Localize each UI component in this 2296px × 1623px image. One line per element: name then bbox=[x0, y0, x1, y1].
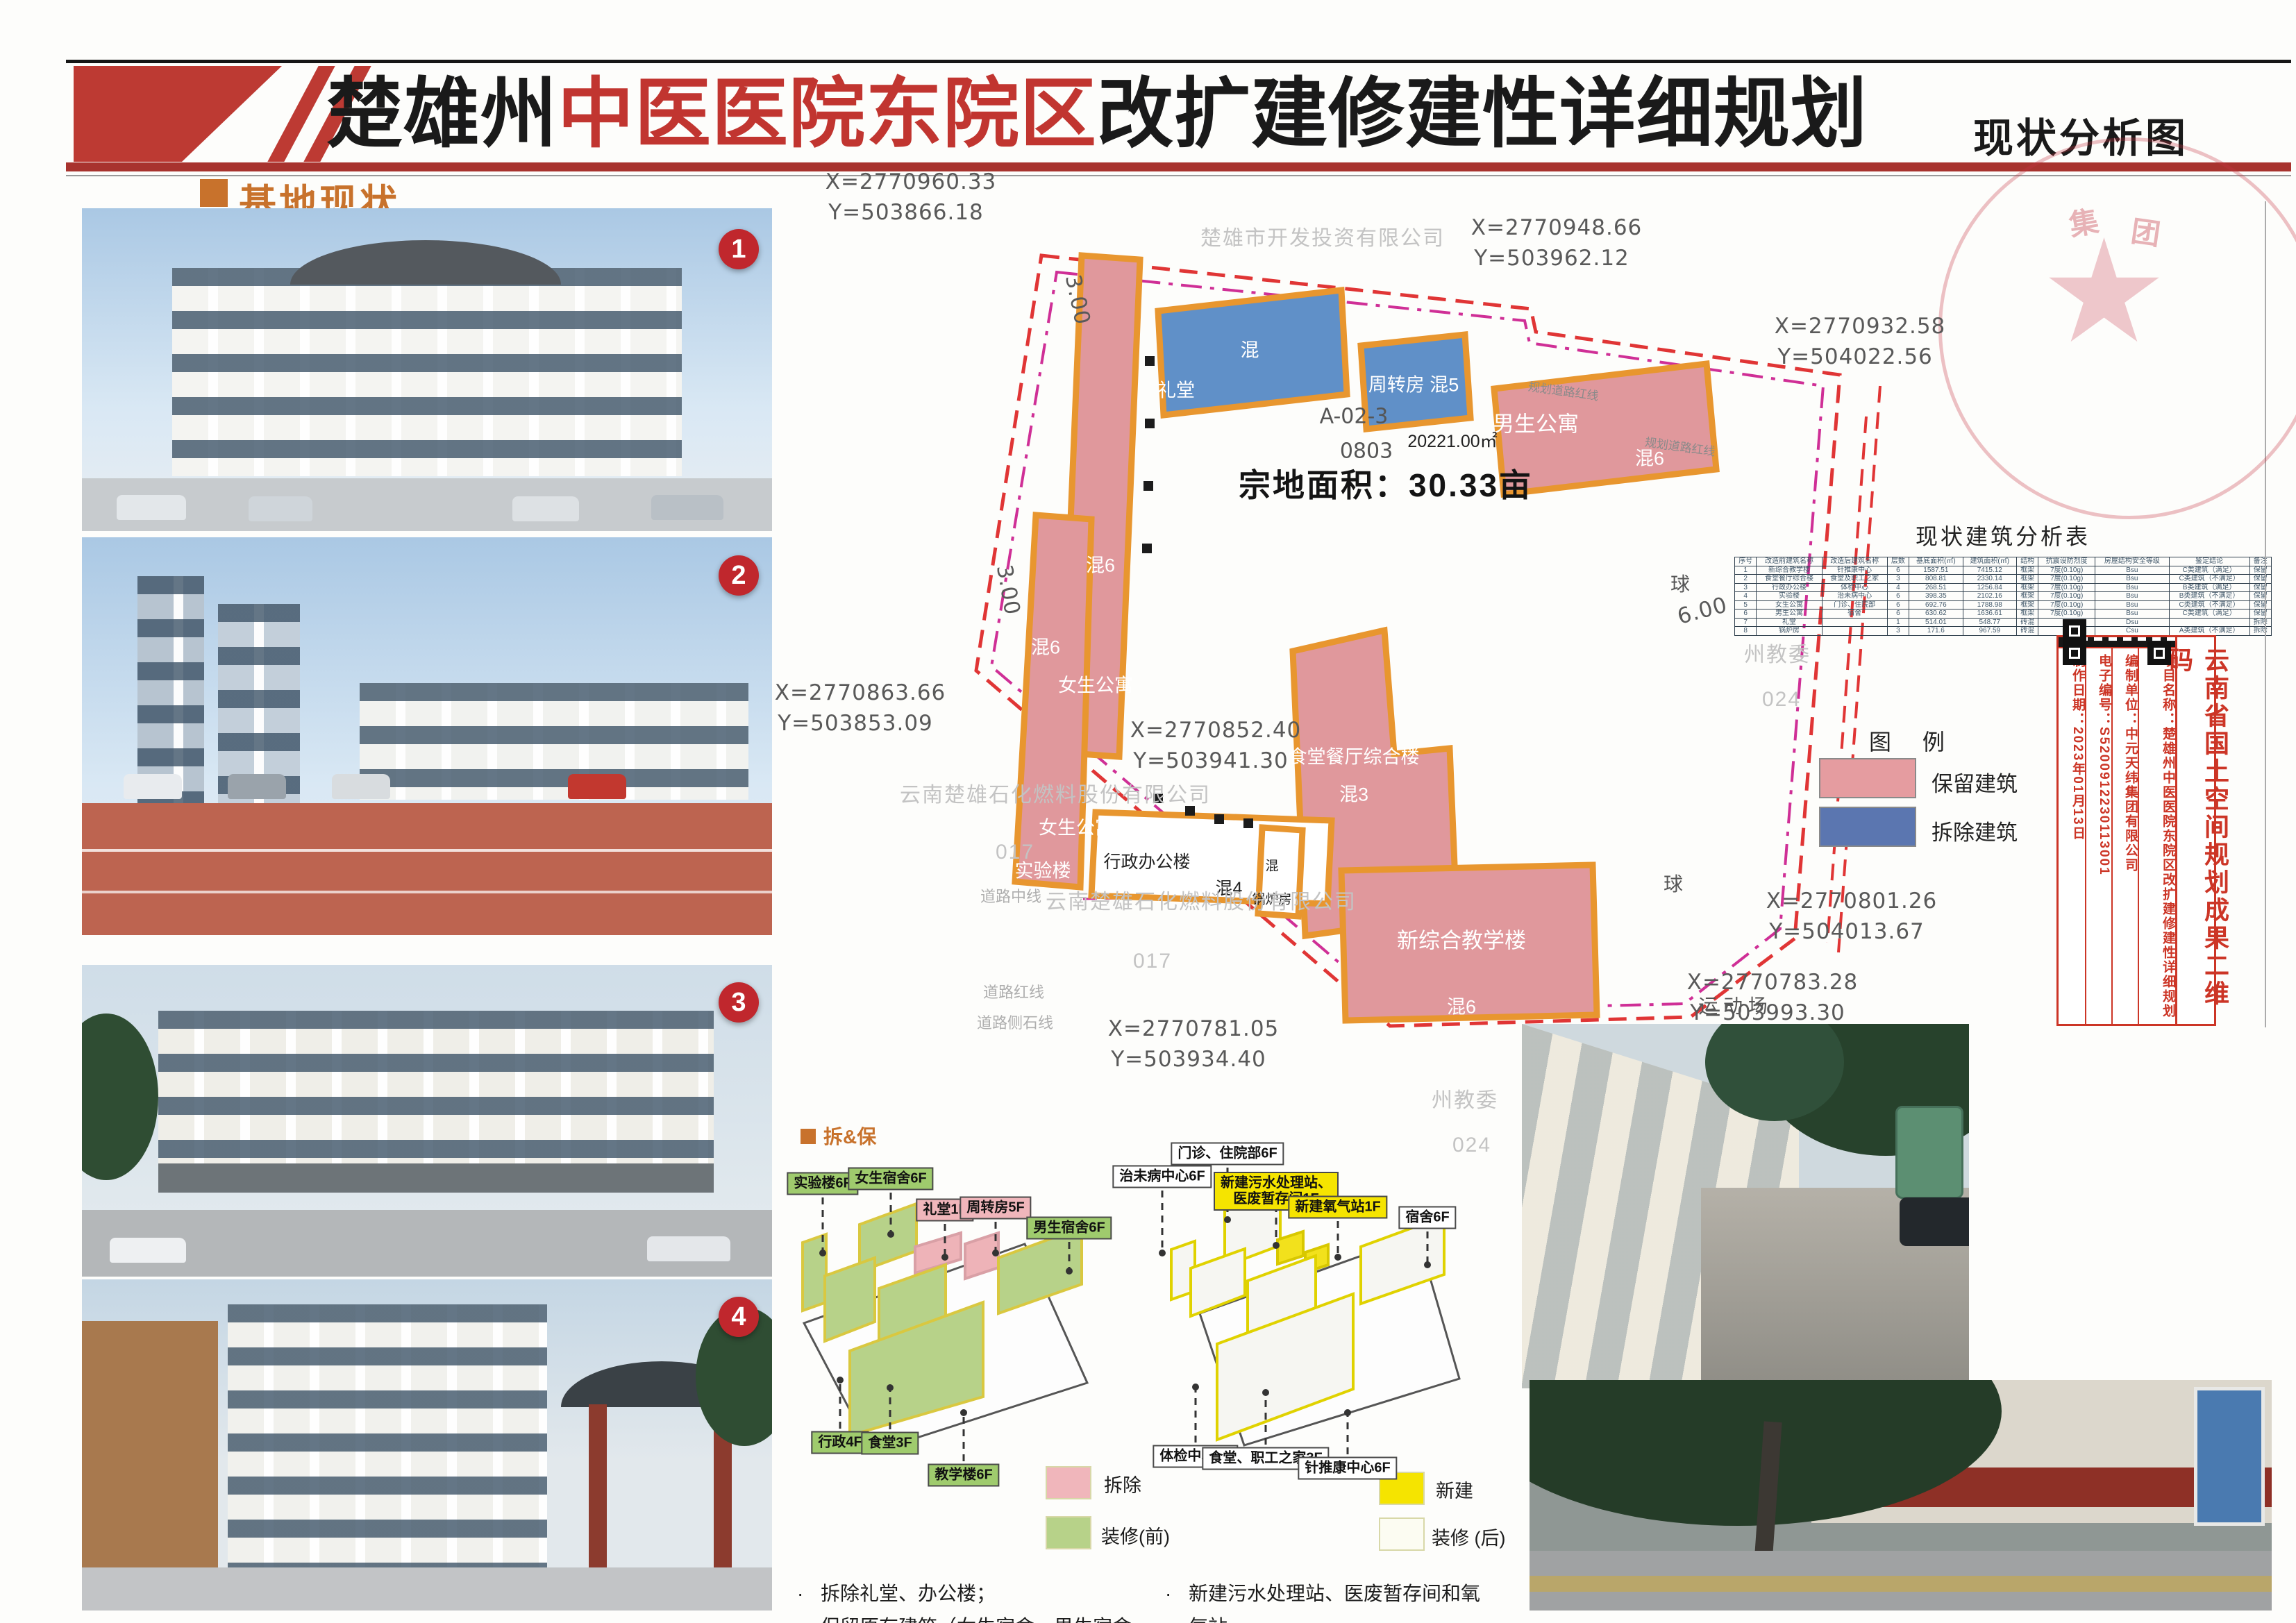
map-label: 新综合教学楼 bbox=[1397, 923, 1526, 955]
table-cell bbox=[2169, 618, 2249, 627]
table-cell: B类建筑（满足） bbox=[2169, 583, 2249, 592]
photo-badge-4: 4 bbox=[719, 1297, 759, 1337]
photo4-ground bbox=[82, 1567, 772, 1611]
table-cell: C类建筑（满足） bbox=[2169, 609, 2249, 619]
photo3-storefront bbox=[158, 1163, 714, 1193]
map-label: 017 bbox=[1133, 950, 1172, 973]
map-label: X=2770781.05 bbox=[1108, 1016, 1280, 1041]
leader-dot bbox=[1334, 1254, 1341, 1261]
table-cell: 6 bbox=[1887, 592, 1909, 601]
plan-sheet: 楚雄州中医医院东院区改扩建修建性详细规划 现状分析图 基地现状 拆&保 bbox=[0, 0, 2296, 1623]
leader-dot bbox=[887, 1231, 894, 1238]
photo-badge-1: 1 bbox=[719, 229, 759, 269]
table-row: 6男生公寓宿舍6630.621636.61框架7度(0.10g)BsuC类建筑（… bbox=[1735, 609, 2272, 619]
table-cell: 6 bbox=[1887, 600, 1909, 609]
photoB-blue-sign bbox=[2194, 1387, 2265, 1526]
table-cell: 砖混 bbox=[2017, 618, 2038, 627]
table-cell: 治未病中心 bbox=[1822, 592, 1887, 601]
table-cell: 4 bbox=[1887, 583, 1909, 592]
table-cell: 4 bbox=[1735, 592, 1757, 601]
table-cell: Bsu bbox=[2095, 592, 2170, 601]
map-label: 云南楚雄石化燃料股份有限公司 bbox=[900, 777, 1211, 808]
photo3-car bbox=[647, 1236, 730, 1261]
header-red-band bbox=[66, 162, 2291, 171]
photo1-car bbox=[651, 495, 723, 520]
map-label: X=2770960.33 bbox=[826, 169, 997, 194]
axon-building bbox=[860, 1204, 916, 1272]
table-cell: 体检中心 bbox=[1822, 583, 1887, 592]
axon-building bbox=[1305, 1245, 1328, 1272]
map-dot bbox=[1145, 356, 1155, 366]
site-photo-3 bbox=[82, 965, 772, 1277]
map-label: 云南楚雄石化燃料股份有限公司 bbox=[1046, 884, 1357, 915]
table-header: 房屋结构安全等级 bbox=[2095, 557, 2170, 566]
photo-badge-3: 3 bbox=[719, 982, 759, 1023]
photoA-green-bus bbox=[1895, 1106, 1963, 1199]
table-cell: 框架 bbox=[2017, 592, 2038, 601]
table-cell: 1 bbox=[1887, 618, 1909, 627]
logo-red-triangle bbox=[74, 66, 282, 162]
photo1-car bbox=[117, 495, 186, 520]
legend-swatch bbox=[1819, 758, 1916, 798]
map-label: 行政办公楼 bbox=[1103, 848, 1190, 873]
table-cell: C类建筑（不满足） bbox=[2169, 600, 2249, 609]
note-item: ·拆除礼堂、办公楼； bbox=[797, 1577, 1165, 1611]
table-cell: 171.6 bbox=[1909, 627, 1963, 636]
leader-dot bbox=[887, 1384, 894, 1391]
table-cell: 1788.98 bbox=[1963, 600, 2016, 609]
table-cell: 食堂餐厅综合楼 bbox=[1757, 575, 1822, 584]
qr-info-column: 编制单位：中元天纬集团有限公司 bbox=[2111, 648, 2138, 1024]
round-stamp-icon bbox=[1938, 137, 2296, 519]
table-row: 2食堂餐厅综合楼食堂及职工之家3808.812330.14框架7度(0.10g)… bbox=[1735, 575, 2272, 584]
axon-building bbox=[1248, 1256, 1316, 1334]
table-cell: 1256.84 bbox=[1963, 583, 2016, 592]
map-label: X=2770863.66 bbox=[775, 680, 946, 705]
table-cell: 拆除 bbox=[2249, 618, 2271, 627]
leader-dot bbox=[1424, 1261, 1431, 1268]
map-label: 球 bbox=[1664, 869, 1683, 897]
qr-info-column: 电子编号：S5200912230113001 bbox=[2085, 648, 2111, 1024]
axon-building bbox=[803, 1234, 826, 1311]
table-cell: 7度(0.10g) bbox=[2038, 566, 2095, 575]
street-photo-1 bbox=[1522, 1024, 1969, 1388]
table-cell: 保留 bbox=[2249, 583, 2271, 592]
table-cell: 宿舍 bbox=[1822, 609, 1887, 619]
table-cell: 新综合教学楼 bbox=[1757, 566, 1822, 575]
axon-left-plate bbox=[804, 1244, 1087, 1452]
photo2-tower bbox=[137, 576, 204, 805]
leader-dot bbox=[837, 1377, 844, 1384]
leader-dot bbox=[941, 1254, 948, 1261]
table-cell: 8 bbox=[1735, 627, 1757, 636]
axon-label: 女生宿舍6F bbox=[848, 1168, 933, 1191]
qr-info-column: 制作日期：2023年01月13日 bbox=[2059, 648, 2085, 1024]
table-cell: 框架 bbox=[2017, 609, 2038, 619]
table-cell: 268.51 bbox=[1909, 583, 1963, 592]
leader-dot bbox=[1273, 1242, 1280, 1249]
map-label: Y=503993.30 bbox=[1690, 1000, 1845, 1025]
photo3-tree bbox=[82, 1014, 158, 1180]
map-label: 024 bbox=[1762, 688, 1801, 712]
table-cell: 967.59 bbox=[1963, 627, 2016, 636]
map-label: 道路侧石线 bbox=[977, 1011, 1053, 1033]
table-header: 结构 bbox=[2017, 557, 2038, 566]
axon-legend-label: 拆除 bbox=[1104, 1470, 1141, 1497]
map-dot bbox=[1145, 419, 1155, 428]
table-header: 层数 bbox=[1887, 557, 1909, 566]
page-title: 楚雄州中医医院东院区改扩建修建性详细规划 bbox=[326, 64, 1868, 165]
table-cell: 框架 bbox=[2017, 566, 2038, 575]
table-cell: 7415.12 bbox=[1963, 566, 2016, 575]
axon-legend-label: 新建 bbox=[1436, 1476, 1473, 1503]
map-dot bbox=[1243, 818, 1253, 828]
table-cell: 7度(0.10g) bbox=[2038, 592, 2095, 601]
axon-label: 食堂3F bbox=[861, 1432, 919, 1455]
map-label: 混3 bbox=[1339, 780, 1368, 807]
map-label: 024 bbox=[1452, 1134, 1491, 1157]
map-label: Y=503853.09 bbox=[778, 711, 933, 736]
table-header: 备注 bbox=[2249, 557, 2271, 566]
table-cell: 514.01 bbox=[1909, 618, 1963, 627]
leader-dot bbox=[1344, 1409, 1351, 1416]
photo1-building bbox=[172, 268, 682, 476]
table-cell: Bsu bbox=[2095, 609, 2170, 619]
table-cell: 礼堂 bbox=[1757, 618, 1822, 627]
map-label: X=2770852.40 bbox=[1130, 718, 1302, 743]
map-label: 道路中线 bbox=[980, 884, 1041, 907]
table-cell: Bsu bbox=[2095, 566, 2170, 575]
map-label: Y=503934.40 bbox=[1111, 1047, 1266, 1072]
map-label: 楚雄市开发投资有限公司 bbox=[1200, 221, 1445, 251]
map-label: 混 bbox=[1265, 856, 1278, 875]
photo2-car bbox=[332, 774, 390, 799]
legend-label: 保留建筑 bbox=[1932, 766, 2018, 798]
section-demolish-keep: 拆&保 bbox=[823, 1122, 876, 1150]
axon-building bbox=[825, 1258, 875, 1341]
table-row: 3行政办公楼体检中心4268.511256.84框架7度(0.10g)BsuB类… bbox=[1735, 583, 2272, 592]
note-item: ·新建污水处理站、医废暂存间和氧气站。 bbox=[1165, 1577, 1498, 1623]
table-cell: 7度(0.10g) bbox=[2038, 575, 2095, 584]
table-cell: 框架 bbox=[2017, 575, 2038, 584]
table-cell: 保留 bbox=[2249, 609, 2271, 619]
axon-label: 周转房5F bbox=[960, 1197, 1031, 1220]
axon-building bbox=[915, 1233, 961, 1273]
table-cell: 6 bbox=[1735, 609, 1757, 619]
leader-dot bbox=[1262, 1389, 1269, 1396]
note-item: ·保留原有建筑（女生宿舍、男生宿舍、实验楼和行政楼、食堂、教学楼） bbox=[797, 1611, 1165, 1623]
map-label: 20221.00㎡ bbox=[1407, 428, 1497, 453]
axon-building bbox=[1361, 1216, 1444, 1304]
map-label: 周转房 混5 bbox=[1368, 370, 1459, 397]
axon-label: 治未病中心6F bbox=[1112, 1166, 1212, 1188]
qr-code-icon bbox=[2059, 637, 2175, 648]
table-cell: 门诊、住院部 bbox=[1822, 600, 1887, 609]
table-header: 抗震设防烈度 bbox=[2038, 557, 2095, 566]
table-cell: 5 bbox=[1735, 600, 1757, 609]
map-label: 017 bbox=[996, 841, 1034, 864]
map-label: Y=504013.67 bbox=[1769, 919, 1925, 944]
table-cell: A类建筑（不满足） bbox=[2169, 627, 2249, 636]
table-cell: 6 bbox=[1887, 566, 1909, 575]
map-label: 女生公寓 bbox=[1058, 671, 1133, 698]
analysis-table-block: 现状建筑分析表 序号改造前建筑名称改造后建筑名称层数基底面积(㎡)建筑面积(㎡)… bbox=[1734, 519, 2272, 636]
map-label: Y=503866.18 bbox=[828, 200, 984, 225]
table-cell: 实验楼 bbox=[1757, 592, 1822, 601]
table-cell: 女生公寓 bbox=[1757, 600, 1822, 609]
street-photo-2 bbox=[1530, 1380, 2272, 1611]
photo4-dorm-building bbox=[228, 1304, 547, 1568]
road-line bbox=[1827, 417, 1866, 943]
table-cell: 1636.61 bbox=[1963, 609, 2016, 619]
table-cell bbox=[1822, 627, 1887, 636]
table-cell: 2 bbox=[1735, 575, 1757, 584]
table-cell: 针推康中心 bbox=[1822, 566, 1887, 575]
section-square-icon bbox=[801, 1129, 816, 1144]
axon-legend-swatch bbox=[1046, 1466, 1091, 1499]
photo4-gate-column bbox=[589, 1404, 607, 1578]
map-label: 3.00 bbox=[1060, 273, 1095, 328]
map-label: 球 bbox=[1670, 569, 1690, 597]
table-header: 基底面积(㎡) bbox=[1909, 557, 1963, 566]
leader-dot bbox=[1192, 1384, 1199, 1390]
site-photo-4 bbox=[82, 1279, 772, 1611]
site-photo-2 bbox=[82, 537, 772, 935]
leader-dot bbox=[1224, 1216, 1231, 1223]
photo1-car bbox=[249, 496, 312, 521]
table-header: 建筑面积(㎡) bbox=[1963, 557, 2016, 566]
table-cell: 行政办公楼 bbox=[1757, 583, 1822, 592]
map-label: X=2770783.28 bbox=[1687, 970, 1859, 995]
map-label: 食堂餐厅综合楼 bbox=[1289, 742, 1420, 769]
table-cell: 808.81 bbox=[1909, 575, 1963, 584]
table-row: 5女生公寓门诊、住院部6692.761788.98框架7度(0.10g)BsuC… bbox=[1735, 600, 2272, 609]
section-square-icon bbox=[200, 179, 228, 207]
axon-building bbox=[965, 1233, 998, 1279]
photoA-car bbox=[1900, 1197, 1969, 1246]
table-cell: 7度(0.10g) bbox=[2038, 609, 2095, 619]
table-header: 改造后建筑名称 bbox=[1822, 557, 1887, 566]
table-row: 8锅炉房3171.6967.59砖混CsuA类建筑（不满足）拆除 bbox=[1735, 627, 2272, 636]
map-label: X=2770948.66 bbox=[1471, 215, 1643, 240]
qr-certificate-block: 制作日期：2023年01月13日电子编号：S5200912230113001编制… bbox=[2056, 635, 2216, 1026]
map-label: 混 bbox=[1241, 335, 1259, 362]
analysis-table: 序号改造前建筑名称改造后建筑名称层数基底面积(㎡)建筑面积(㎡)结构抗震设防烈度… bbox=[1734, 557, 2272, 636]
map-label: X=2770801.26 bbox=[1766, 889, 1938, 914]
axon-label: 新建氧气站1F bbox=[1288, 1196, 1387, 1219]
photoB-tactile-paving bbox=[1530, 1576, 2272, 1592]
map-label: 3.00 bbox=[991, 563, 1025, 617]
table-cell: 锅炉房 bbox=[1757, 627, 1822, 636]
table-cell: 398.35 bbox=[1909, 592, 1963, 601]
table-cell: Csu bbox=[2095, 627, 2170, 636]
table-cell: 框架 bbox=[2017, 583, 2038, 592]
table-cell: 3 bbox=[1887, 627, 1909, 636]
map-label: A-02-3 bbox=[1320, 405, 1389, 429]
map-label: 道路红线 bbox=[983, 980, 1044, 1002]
map-label: 州教委 bbox=[1744, 637, 1811, 668]
map-label: X=2770932.58 bbox=[1775, 314, 1946, 339]
axon-building bbox=[1217, 1294, 1353, 1440]
axon-label: 教学楼6F bbox=[928, 1464, 999, 1487]
map-dot bbox=[1214, 814, 1224, 824]
axon-legend-swatch bbox=[1379, 1517, 1425, 1551]
axon-label: 宿舍6F bbox=[1398, 1206, 1456, 1229]
axon-building bbox=[1191, 1249, 1245, 1316]
table-cell: 保留 bbox=[2249, 575, 2271, 584]
photo2-track-line bbox=[82, 891, 772, 893]
qr-info-columns: 制作日期：2023年01月13日电子编号：S5200912230113001编制… bbox=[2059, 648, 2175, 1024]
qr-side-title: 云南省国土空间规划成果二维码 bbox=[2175, 637, 2216, 1024]
table-cell: 2102.16 bbox=[1963, 592, 2016, 601]
table-header: 改造前建筑名称 bbox=[1757, 557, 1822, 566]
photo2-car bbox=[228, 774, 286, 799]
map-label: 宗地面积：30.33亩 bbox=[1239, 460, 1533, 506]
photo3-car bbox=[110, 1238, 186, 1263]
axon-label: 针推康中心6F bbox=[1298, 1457, 1397, 1480]
table-cell: 砖混 bbox=[2017, 627, 2038, 636]
map-label: Y=503962.12 bbox=[1474, 246, 1629, 271]
table-cell: 食堂及职工之家 bbox=[1822, 575, 1887, 584]
table-cell: Bsu bbox=[2095, 600, 2170, 609]
axon-building bbox=[1171, 1241, 1195, 1300]
axon-building bbox=[1277, 1231, 1303, 1264]
map-label: 混6 bbox=[1031, 632, 1060, 659]
table-cell: 保留 bbox=[2249, 592, 2271, 601]
table-cell: 3 bbox=[1887, 575, 1909, 584]
table-cell: C类建筑（满足） bbox=[2169, 566, 2249, 575]
analysis-table-title: 现状建筑分析表 bbox=[1734, 519, 2272, 551]
axon-label: 男生宿舍6F bbox=[1026, 1217, 1112, 1240]
table-cell: 保留 bbox=[2249, 566, 2271, 575]
map-dot bbox=[1143, 481, 1153, 491]
table-cell: 630.62 bbox=[1909, 609, 1963, 619]
table-cell: Bsu bbox=[2095, 575, 2170, 584]
road-line bbox=[1838, 386, 1880, 952]
leader-dot bbox=[819, 1250, 826, 1256]
photo2-track-line bbox=[82, 849, 772, 852]
table-header: 序号 bbox=[1735, 557, 1757, 566]
map-label: 男生公寓 bbox=[1493, 407, 1579, 438]
table-cell: 7度(0.10g) bbox=[2038, 600, 2095, 609]
map-label: 州教委 bbox=[1432, 1083, 1498, 1113]
photo1-roof bbox=[290, 240, 561, 285]
table-row: 7礼堂1514.01548.77砖混Dsu拆除 bbox=[1735, 618, 2272, 627]
leader-dot bbox=[960, 1409, 967, 1416]
table-cell: 2330.14 bbox=[1963, 575, 2016, 584]
table-cell: B类建筑（不满足） bbox=[2169, 592, 2249, 601]
map-label: 6.00 bbox=[1675, 592, 1730, 630]
table-cell: 7 bbox=[1735, 618, 1757, 627]
table-cell: Dsu bbox=[2095, 618, 2170, 627]
table-cell: 框架 bbox=[2017, 600, 2038, 609]
title-highlight: 中医医院东院区 bbox=[558, 72, 1097, 157]
table-cell: C类建筑（不满足） bbox=[2169, 575, 2249, 584]
table-cell: 548.77 bbox=[1963, 618, 2016, 627]
table-cell: 3 bbox=[1735, 583, 1757, 592]
axon-label: 行政4F bbox=[811, 1431, 869, 1454]
top-border-rule bbox=[66, 60, 2291, 63]
map-label: 规划道路红线 bbox=[1527, 377, 1600, 404]
title-prefix: 楚雄州 bbox=[326, 72, 558, 157]
axon-legend-swatch bbox=[1046, 1516, 1091, 1549]
table-row: 1新综合教学楼针推康中心61587.517415.12框架7度(0.10g)Bs… bbox=[1735, 566, 2272, 575]
table-cell: 1 bbox=[1735, 566, 1757, 575]
leader-dot bbox=[1066, 1268, 1073, 1275]
table-row: 4实验楼治未病中心6398.352102.16框架7度(0.10g)BsuB类建… bbox=[1735, 592, 2272, 601]
photo2-car bbox=[124, 774, 182, 799]
map-label: 礼堂 bbox=[1157, 376, 1195, 403]
table-cell: 6 bbox=[1887, 609, 1909, 619]
axon-building bbox=[998, 1227, 1082, 1313]
table-header: 鉴定结论 bbox=[2169, 557, 2249, 566]
photo2-dorm-building bbox=[360, 683, 748, 800]
map-label: 混6 bbox=[1447, 992, 1476, 1019]
table-cell bbox=[1822, 618, 1887, 627]
map-label: Y=503941.30 bbox=[1133, 748, 1289, 773]
leader-dot bbox=[1159, 1250, 1166, 1256]
table-cell: 拆除 bbox=[2249, 627, 2271, 636]
notes-left: ·拆除礼堂、办公楼；·保留原有建筑（女生宿舍、男生宿舍、实验楼和行政楼、食堂、教… bbox=[797, 1577, 1165, 1623]
axon-legend-label: 装修(前) bbox=[1101, 1522, 1170, 1549]
photo-badge-2: 2 bbox=[719, 555, 759, 596]
axon-right-plate bbox=[1200, 1236, 1459, 1445]
table-cell: 保留 bbox=[2249, 600, 2271, 609]
axon-building bbox=[879, 1265, 946, 1341]
map-dot bbox=[1142, 544, 1152, 553]
notes-right: ·新建污水处理站、医废暂存间和氧气站。·进行装修后，作为医疗业务用房、辅助用房和… bbox=[1165, 1577, 1498, 1623]
axon-legend-label: 装修 (后) bbox=[1432, 1523, 1505, 1550]
map-label: 混6 bbox=[1086, 550, 1115, 578]
table-cell: Bsu bbox=[2095, 583, 2170, 592]
photo1-car bbox=[512, 496, 579, 521]
photo2-car bbox=[568, 774, 626, 799]
axon-building bbox=[850, 1302, 983, 1436]
site-photo-1 bbox=[82, 208, 772, 531]
table-cell: 7度(0.10g) bbox=[2038, 583, 2095, 592]
axon-label: 门诊、住院部6F bbox=[1171, 1143, 1284, 1166]
legend-title: 图 例 bbox=[1869, 725, 1957, 757]
map-label: 女生公寓 bbox=[1039, 813, 1114, 840]
table-cell: 692.76 bbox=[1909, 600, 1963, 609]
qr-left-panel: 制作日期：2023年01月13日电子编号：S5200912230113001编制… bbox=[2059, 637, 2175, 1024]
map-label: Y=504022.56 bbox=[1777, 344, 1933, 369]
leader-dot bbox=[992, 1250, 999, 1256]
title-suffix: 改扩建修建性详细规划 bbox=[1097, 72, 1868, 157]
table-cell: 男生公寓 bbox=[1757, 609, 1822, 619]
legend-swatch bbox=[1819, 807, 1916, 847]
table-cell: 1587.51 bbox=[1909, 566, 1963, 575]
photo2-running-track bbox=[82, 803, 772, 935]
legend-label: 拆除建筑 bbox=[1932, 815, 2018, 846]
